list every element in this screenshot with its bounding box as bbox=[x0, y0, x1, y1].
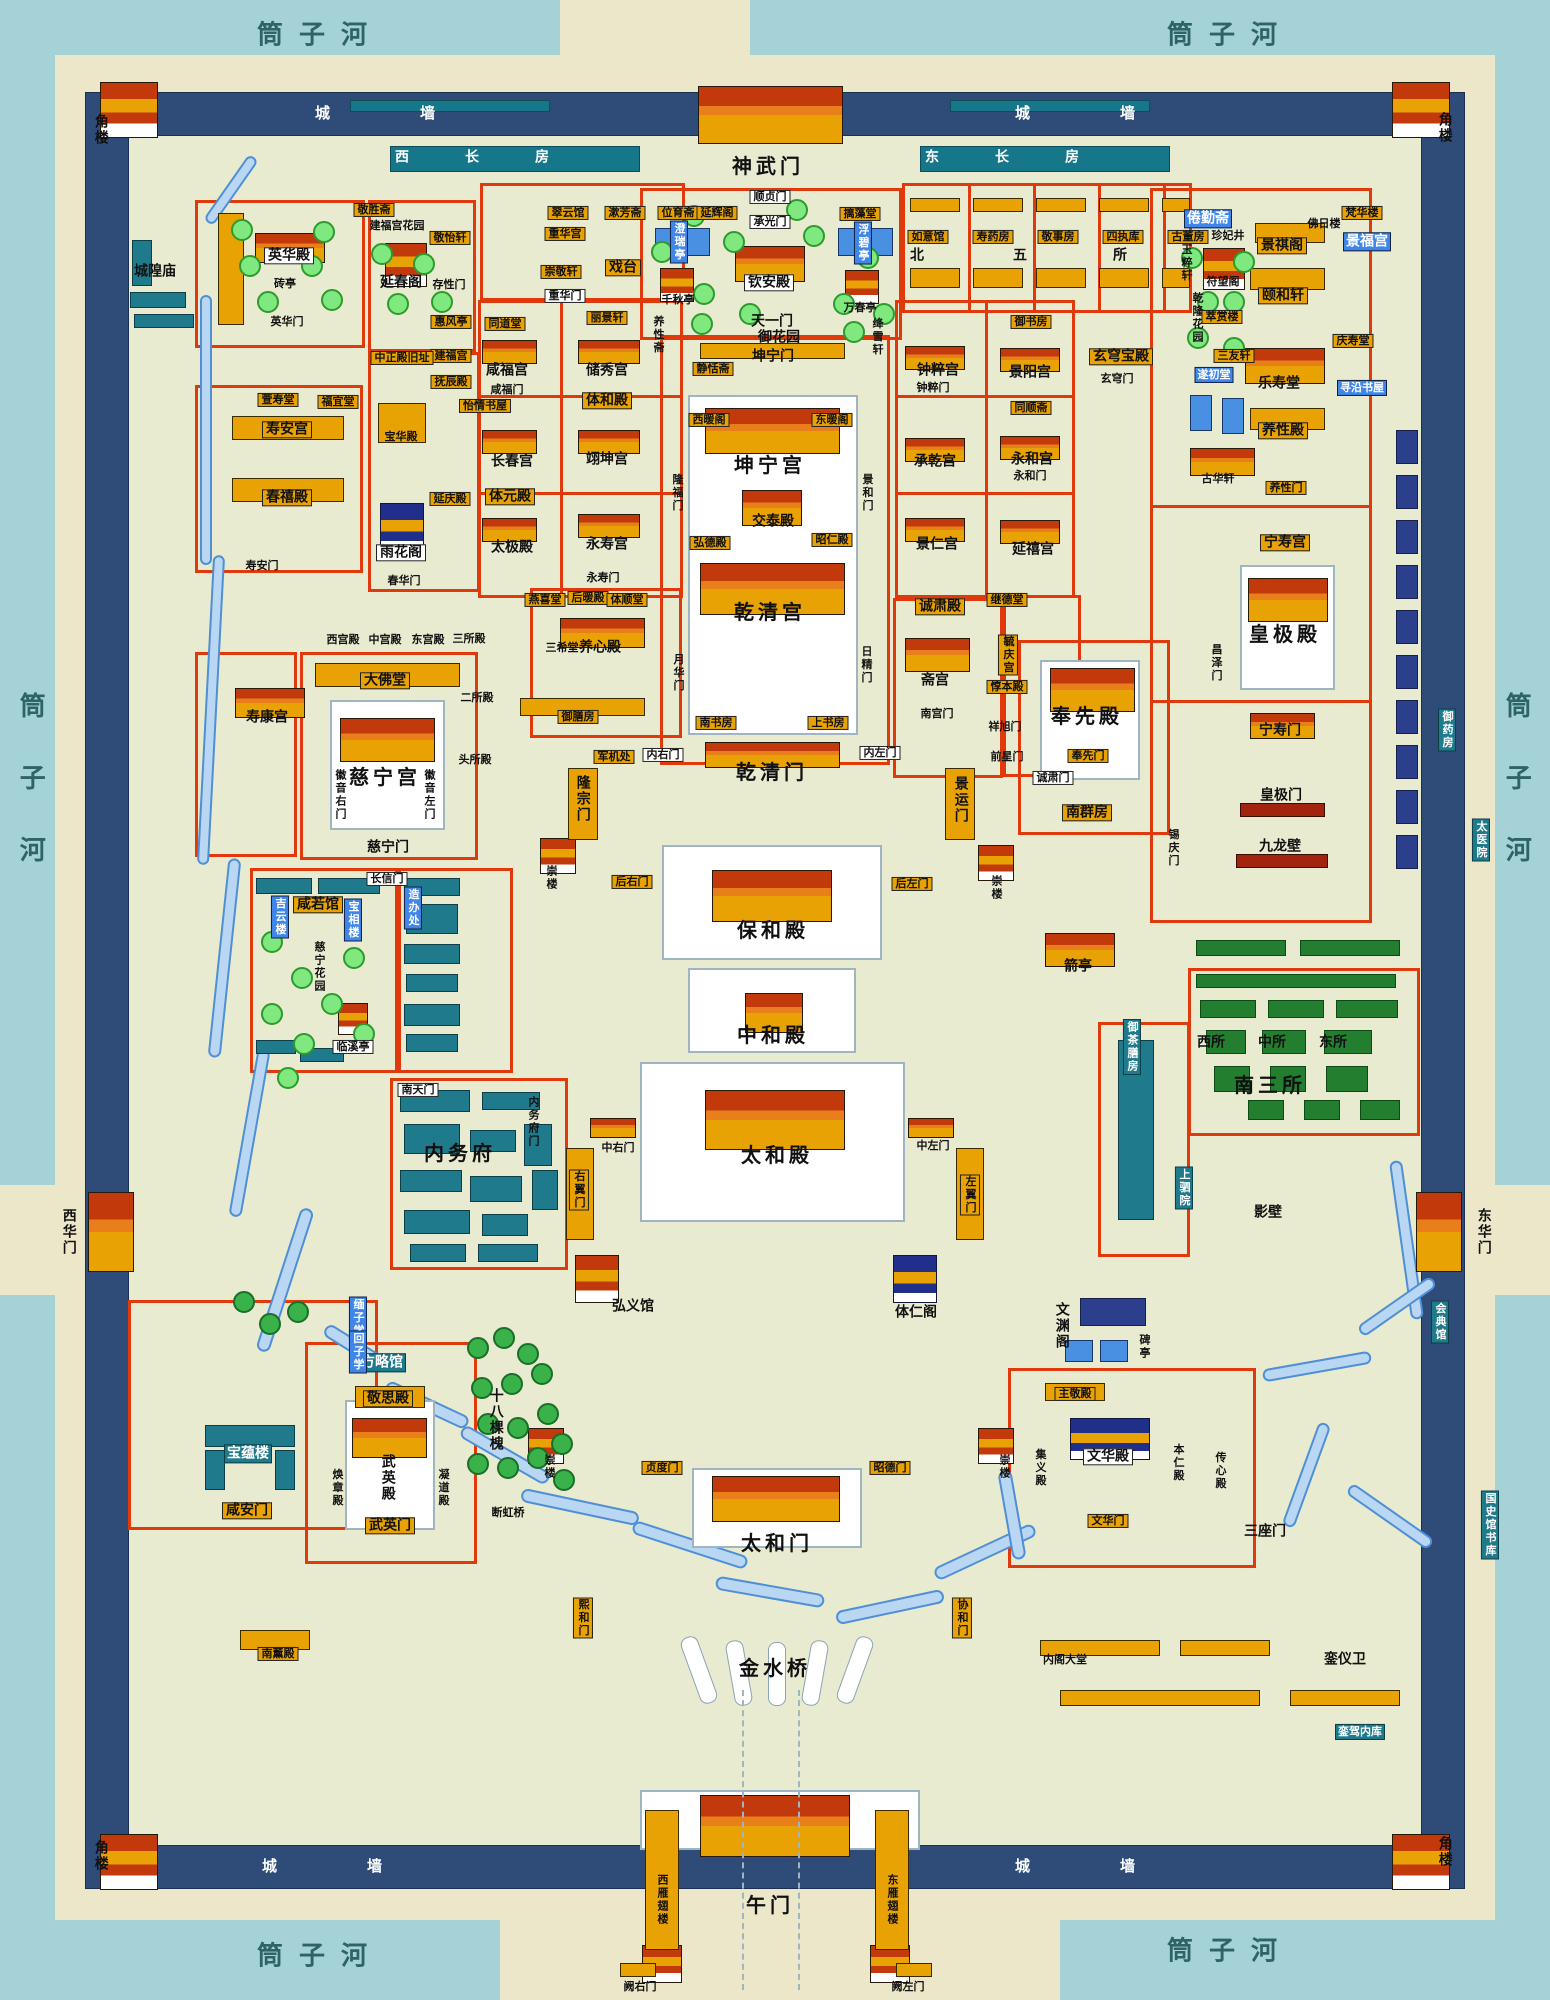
tree-icon bbox=[257, 291, 279, 313]
map-label: 雨花阁 bbox=[376, 544, 426, 561]
map-label: 三座门 bbox=[1244, 1524, 1286, 1539]
map-label: 寻沿书屋 bbox=[1337, 380, 1387, 396]
map-label: 寿安宫 bbox=[262, 421, 312, 438]
map-shape bbox=[1196, 940, 1286, 956]
map-label: 武英门 bbox=[365, 1517, 415, 1534]
map-label: 奉先殿 bbox=[1051, 705, 1123, 727]
map-label: 体和殿 bbox=[582, 392, 632, 409]
tree-icon bbox=[321, 289, 343, 311]
map-label: 内阁大堂 bbox=[1043, 1654, 1087, 1666]
map-label: 咸福宫 bbox=[486, 363, 528, 378]
map-shape bbox=[532, 1170, 558, 1210]
map-label: 回子学 bbox=[349, 1331, 367, 1374]
map-shape bbox=[1396, 700, 1418, 734]
map-label: 神武门 bbox=[732, 155, 804, 177]
map-label: 中正殿旧址 bbox=[371, 351, 434, 365]
map-label: 三所殿 bbox=[453, 633, 486, 645]
map-label: 颐和轩 bbox=[1258, 287, 1308, 304]
map-shape bbox=[482, 1214, 528, 1236]
map-shape bbox=[1099, 198, 1149, 212]
map-shape bbox=[130, 292, 186, 308]
map-label: 东宫殿 bbox=[412, 634, 445, 646]
map-label: 所 bbox=[1113, 248, 1127, 263]
map-label: 长春宫 bbox=[491, 454, 533, 469]
map-label: 贞度门 bbox=[642, 1461, 683, 1475]
map-label: 御花园 bbox=[758, 330, 800, 345]
map-label: 城墙 bbox=[315, 105, 525, 122]
map-label: 储秀宫 bbox=[586, 363, 628, 378]
map-label: 崇楼 bbox=[998, 1454, 1010, 1480]
tree-icon bbox=[517, 1343, 539, 1365]
map-label: 筒子河 bbox=[1167, 1938, 1293, 1967]
map-label: 敬怡轩 bbox=[430, 231, 471, 245]
map-shape bbox=[1458, 1185, 1550, 1295]
map-label: 熙和门 bbox=[573, 1598, 593, 1639]
tree-icon bbox=[343, 947, 365, 969]
map-label: 体元殿 bbox=[485, 488, 535, 505]
map-shape bbox=[560, 300, 563, 598]
map-label: 延春阁 bbox=[380, 275, 422, 290]
tree-icon bbox=[293, 1033, 315, 1055]
map-shape bbox=[256, 878, 312, 894]
map-label: 咸福门 bbox=[491, 384, 524, 396]
map-label: 徽音右门 bbox=[334, 769, 346, 821]
map-label: 十八棵槐 bbox=[487, 1388, 502, 1452]
map-shape bbox=[560, 0, 750, 60]
tree-icon bbox=[371, 243, 393, 265]
map-shape bbox=[470, 1176, 522, 1202]
map-shape bbox=[410, 1244, 466, 1262]
map-label: 徽音左门 bbox=[423, 769, 435, 821]
map-label: 东所 bbox=[1319, 1035, 1347, 1050]
map-label: 后右门 bbox=[612, 875, 653, 889]
map-label: 太和门 bbox=[741, 1532, 813, 1554]
map-label: 坤宁门 bbox=[752, 349, 794, 364]
map-shape bbox=[1421, 92, 1465, 1889]
map-label: 昭仁殿 bbox=[812, 533, 853, 547]
map-label: 午门 bbox=[746, 1894, 794, 1916]
map-label: 养性斋 bbox=[652, 316, 664, 355]
map-label: 隆宗门 bbox=[574, 775, 589, 823]
map-label: 御膳房 bbox=[558, 710, 599, 724]
map-label: 符望阁 bbox=[1207, 276, 1240, 288]
map-label: 传心殿 bbox=[1214, 1452, 1226, 1491]
map-label: 南天门 bbox=[398, 1083, 439, 1097]
map-shape bbox=[1036, 268, 1086, 288]
map-label: 中右门 bbox=[602, 1142, 635, 1154]
map-shape bbox=[968, 183, 971, 313]
map-label: 中所 bbox=[1258, 1035, 1286, 1050]
building-icon bbox=[712, 1476, 840, 1522]
map-label: 翊坤宫 bbox=[586, 452, 628, 467]
map-label: 万春亭 bbox=[844, 302, 877, 314]
map-label: 筒子河 bbox=[257, 1943, 383, 1972]
map-shape bbox=[1396, 745, 1418, 779]
tree-icon bbox=[551, 1433, 573, 1455]
map-shape bbox=[0, 1185, 92, 1295]
map-label: 寿药房 bbox=[973, 230, 1014, 244]
map-label: 城隍庙 bbox=[134, 264, 176, 279]
map-label: 国史馆书库 bbox=[1481, 1491, 1499, 1560]
map-label: 东暖阁 bbox=[812, 413, 853, 427]
building-icon bbox=[482, 430, 537, 454]
building-icon bbox=[712, 870, 832, 922]
map-shape bbox=[1222, 398, 1244, 434]
map-label: 阙左门 bbox=[892, 1981, 925, 1993]
map-label: 体仁阁 bbox=[895, 1305, 937, 1320]
map-label: 诚肃门 bbox=[1033, 771, 1074, 785]
map-label: 文华殿 bbox=[1083, 1448, 1133, 1465]
building-icon bbox=[908, 1118, 954, 1138]
map-shape bbox=[1360, 1100, 1400, 1120]
map-label: 戏台 bbox=[605, 259, 641, 276]
building-icon bbox=[578, 340, 640, 364]
map-shape bbox=[275, 1450, 295, 1490]
map-label: 大佛堂 bbox=[360, 672, 410, 689]
tree-icon bbox=[277, 1067, 299, 1089]
map-label: 西暖阁 bbox=[689, 413, 730, 427]
map-label: 延禧宫 bbox=[1012, 542, 1054, 557]
map-label: 协和门 bbox=[952, 1598, 972, 1639]
map-shape bbox=[1396, 475, 1418, 509]
map-label: 太极殿 bbox=[491, 540, 533, 555]
map-label: 浮碧亭 bbox=[854, 222, 872, 265]
map-label: 军机处 bbox=[594, 750, 635, 764]
map-shape bbox=[1150, 700, 1372, 703]
map-shape bbox=[1060, 1690, 1260, 1706]
map-shape bbox=[985, 300, 988, 598]
map-label: 敬胜斋 bbox=[354, 203, 395, 217]
map-label: 角楼 bbox=[1436, 1836, 1451, 1868]
map-label: 崇敬轩 bbox=[541, 265, 582, 279]
map-label: 静恬斋 bbox=[693, 362, 734, 376]
map-label: 钟粹宫 bbox=[917, 363, 959, 378]
map-label: 城墙 bbox=[1015, 105, 1225, 122]
map-label: 重华门 bbox=[545, 289, 586, 303]
map-shape bbox=[406, 974, 458, 992]
map-shape bbox=[1396, 835, 1418, 869]
map-shape bbox=[1036, 198, 1086, 212]
map-shape bbox=[1396, 430, 1418, 464]
map-label: 角楼 bbox=[92, 114, 107, 146]
tree-icon bbox=[287, 1301, 309, 1323]
map-label: 南书房 bbox=[696, 716, 737, 730]
tree-icon bbox=[493, 1327, 515, 1349]
map-label: 筒子河 bbox=[1167, 22, 1293, 51]
map-label: 建福宫花园 bbox=[370, 220, 425, 232]
river-segment bbox=[200, 295, 212, 565]
map-shape bbox=[1100, 1340, 1128, 1362]
map-label: 同道堂 bbox=[485, 317, 526, 331]
tree-icon bbox=[313, 221, 335, 243]
forbidden-city-map: 筒子河筒子河筒子河筒子河筒子河筒子河角楼角楼角楼角楼城墙城墙城墙城墙西长房东长房… bbox=[0, 0, 1550, 2000]
map-label: 三希堂 bbox=[546, 642, 579, 654]
map-label: 御书房 bbox=[1011, 315, 1052, 329]
map-label: 澄瑞亭 bbox=[670, 221, 688, 264]
map-shape bbox=[1396, 565, 1418, 599]
map-label: 承乾宫 bbox=[914, 454, 956, 469]
map-label: 梵华楼 bbox=[1342, 206, 1383, 220]
map-label: 断虹桥 bbox=[492, 1507, 525, 1519]
tree-icon bbox=[233, 1291, 255, 1313]
map-label: 文华门 bbox=[1088, 1514, 1129, 1528]
map-label: 惠风亭 bbox=[431, 315, 472, 329]
map-label: 丽景轩 bbox=[587, 311, 628, 325]
building-icon bbox=[1248, 578, 1328, 622]
map-label: 宁寿门 bbox=[1259, 723, 1301, 738]
map-label: 乾清门 bbox=[736, 761, 808, 783]
map-label: 玄穹门 bbox=[1101, 373, 1134, 385]
map-label: 延辉阁 bbox=[697, 206, 738, 220]
map-label: 景仁宫 bbox=[916, 537, 958, 552]
map-label: 漱芳斋 bbox=[605, 206, 646, 220]
tree-icon bbox=[467, 1453, 489, 1475]
map-label: 体顺堂 bbox=[607, 593, 648, 607]
map-label: 景祺阁 bbox=[1257, 237, 1307, 254]
map-shape bbox=[1099, 268, 1149, 288]
map-label: 永和宫 bbox=[1011, 452, 1053, 467]
map-label: 皇极殿 bbox=[1249, 623, 1321, 645]
map-label: 后左门 bbox=[892, 877, 933, 891]
map-label: 慈宁花园 bbox=[313, 941, 325, 993]
map-label: 凝道殿 bbox=[437, 1469, 449, 1508]
map-label: 弘德殿 bbox=[690, 536, 731, 550]
map-label: 内右门 bbox=[643, 748, 684, 762]
map-label: 顺贞门 bbox=[750, 190, 791, 204]
building-icon bbox=[482, 340, 537, 364]
tree-icon bbox=[467, 1337, 489, 1359]
tree-icon bbox=[321, 993, 343, 1015]
tree-icon bbox=[1233, 251, 1255, 273]
map-shape bbox=[1200, 1000, 1256, 1018]
map-label: 天一门 bbox=[751, 314, 793, 329]
tree-icon bbox=[261, 1003, 283, 1025]
map-shape bbox=[256, 1040, 296, 1054]
tree-icon bbox=[291, 967, 313, 989]
map-label: 毓庆宫 bbox=[998, 635, 1018, 676]
map-shape bbox=[1240, 803, 1325, 817]
map-label: 继德堂 bbox=[987, 593, 1028, 607]
map-shape bbox=[798, 1690, 800, 1990]
map-label: 古董房 bbox=[1168, 230, 1209, 244]
map-shape bbox=[1080, 1298, 1146, 1326]
map-label: 角楼 bbox=[92, 1840, 107, 1872]
map-label: 寿安门 bbox=[246, 560, 279, 572]
map-shape bbox=[1396, 655, 1418, 689]
building-icon bbox=[100, 1834, 158, 1890]
map-shape bbox=[895, 492, 1075, 495]
map-label: 造办处 bbox=[404, 887, 422, 930]
map-label: 三友轩 bbox=[1214, 349, 1255, 363]
map-label: 左翼门 bbox=[960, 1175, 980, 1216]
map-shape bbox=[404, 1004, 460, 1026]
map-label: 珍妃井 bbox=[1212, 230, 1245, 242]
map-shape bbox=[1396, 790, 1418, 824]
map-label: 内务府门 bbox=[527, 1096, 539, 1148]
map-label: 古华轩 bbox=[1202, 473, 1235, 485]
map-label: 西华门 bbox=[60, 1208, 75, 1256]
map-shape bbox=[1268, 1000, 1324, 1018]
map-shape bbox=[1236, 854, 1328, 868]
map-label: 玉粹轩 bbox=[1180, 244, 1192, 283]
map-label: 东长房 bbox=[925, 150, 1135, 165]
map-label: 春禧殿 bbox=[262, 489, 312, 506]
map-shape bbox=[1290, 1690, 1400, 1706]
building-icon bbox=[100, 82, 158, 138]
map-label: 敬思殿 bbox=[363, 1390, 413, 1407]
building-icon bbox=[905, 638, 970, 672]
map-label: 景和门 bbox=[861, 474, 873, 513]
map-shape bbox=[910, 198, 960, 212]
map-label: 文渊阁 bbox=[1053, 1302, 1068, 1350]
map-label: 西所 bbox=[1197, 1035, 1225, 1050]
map-label: 英华门 bbox=[271, 316, 304, 328]
building-icon bbox=[700, 1795, 850, 1857]
map-label: 存性门 bbox=[433, 279, 466, 291]
map-label: 中左门 bbox=[917, 1140, 950, 1152]
map-label: 御药房 bbox=[1438, 709, 1456, 752]
map-label: 寿康宫 bbox=[246, 710, 288, 725]
map-label: 敬事房 bbox=[1038, 230, 1079, 244]
map-shape bbox=[1300, 940, 1400, 956]
map-label: 乾清宫 bbox=[734, 601, 806, 623]
map-label: 东雁翅楼 bbox=[886, 1874, 898, 1926]
map-label: 筒子河 bbox=[16, 692, 45, 908]
map-label: 集义殿 bbox=[1034, 1449, 1046, 1488]
map-label: 倦勤斋 bbox=[1184, 209, 1232, 228]
tree-icon bbox=[497, 1457, 519, 1479]
map-label: 慈宁门 bbox=[367, 840, 409, 855]
map-shape bbox=[478, 1244, 538, 1262]
map-label: 五 bbox=[1013, 248, 1027, 263]
map-shape bbox=[404, 944, 460, 964]
map-shape bbox=[973, 268, 1023, 288]
map-shape bbox=[620, 1963, 656, 1977]
map-label: 宝相楼 bbox=[344, 899, 362, 942]
map-label: 斋宫 bbox=[921, 673, 949, 688]
map-label: 昌泽门 bbox=[1210, 644, 1222, 683]
map-shape bbox=[85, 92, 129, 1889]
map-shape bbox=[1180, 1640, 1270, 1656]
map-shape bbox=[1190, 395, 1212, 431]
map-label: 惇本殿 bbox=[987, 680, 1028, 694]
building-icon bbox=[893, 1255, 937, 1303]
map-shape bbox=[973, 198, 1023, 212]
tree-icon bbox=[553, 1469, 575, 1491]
building-icon bbox=[698, 86, 843, 144]
map-label: 延庆殿 bbox=[430, 492, 471, 506]
map-label: 銮驾内库 bbox=[1335, 1724, 1385, 1740]
map-shape bbox=[1326, 1066, 1368, 1092]
building-icon bbox=[340, 718, 435, 762]
map-shape bbox=[406, 1034, 458, 1052]
map-label: 位育斋 bbox=[658, 206, 699, 220]
tree-icon bbox=[387, 293, 409, 315]
map-label: 二所殿 bbox=[461, 692, 494, 704]
map-label: 养心殿 bbox=[579, 640, 621, 655]
map-label: 西雁翅楼 bbox=[656, 1874, 668, 1926]
map-label: 咸安门 bbox=[222, 1502, 272, 1519]
map-label: 养性殿 bbox=[1258, 422, 1308, 439]
map-label: 萃赏楼 bbox=[1202, 310, 1243, 324]
map-label: 诚肃殿 bbox=[915, 598, 965, 615]
map-label: 保和殿 bbox=[737, 919, 809, 941]
map-label: 角楼 bbox=[1436, 112, 1451, 144]
map-label: 金水桥 bbox=[739, 1657, 811, 1679]
tree-icon bbox=[413, 253, 435, 275]
map-label: 英华殿 bbox=[264, 247, 314, 264]
map-label: 乐寿堂 bbox=[1258, 376, 1300, 391]
map-label: 銮仪卫 bbox=[1324, 1652, 1366, 1667]
map-label: 碑亭 bbox=[1138, 1334, 1150, 1360]
map-label: 佛日楼 bbox=[1308, 218, 1341, 230]
building-icon bbox=[590, 1118, 636, 1138]
map-shape bbox=[1304, 1100, 1340, 1120]
map-label: 永和门 bbox=[1014, 470, 1047, 482]
map-label: 箭亭 bbox=[1064, 959, 1092, 974]
map-label: 景运门 bbox=[952, 776, 967, 824]
map-label: 建福宫 bbox=[431, 349, 472, 363]
map-shape bbox=[1396, 520, 1418, 554]
map-shape bbox=[1196, 974, 1396, 988]
map-label: 影壁 bbox=[1254, 1205, 1282, 1220]
tree-icon bbox=[501, 1373, 523, 1395]
map-label: 上书房 bbox=[808, 716, 849, 730]
map-label: 北 bbox=[910, 248, 924, 263]
map-label: 燕喜堂 bbox=[525, 593, 566, 607]
map-label: 崇楼 bbox=[990, 875, 1002, 901]
map-label: 南宫门 bbox=[921, 708, 954, 720]
map-label: 四执库 bbox=[1103, 230, 1144, 244]
map-label: 临溪亭 bbox=[333, 1040, 374, 1054]
map-label: 宝蕴楼 bbox=[224, 1444, 272, 1463]
map-shape bbox=[1150, 505, 1372, 508]
map-label: 日精门 bbox=[860, 646, 872, 685]
map-label: 千秋亭 bbox=[662, 294, 695, 306]
map-label: 庆寿堂 bbox=[1333, 334, 1374, 348]
map-shape bbox=[742, 1690, 744, 1990]
tree-icon bbox=[507, 1417, 529, 1439]
map-label: 月华门 bbox=[672, 654, 684, 693]
map-label: 福宜堂 bbox=[318, 395, 359, 409]
map-label: 皇极门 bbox=[1260, 788, 1302, 803]
map-label: 后暖殿 bbox=[568, 591, 609, 605]
map-shape bbox=[205, 1450, 225, 1490]
map-label: 城墙 bbox=[1015, 1858, 1225, 1875]
map-label: 永寿门 bbox=[587, 572, 620, 584]
map-label: 内左门 bbox=[860, 746, 901, 760]
map-label: 景阳宫 bbox=[1009, 365, 1051, 380]
map-label: 钟粹门 bbox=[917, 382, 950, 394]
tree-icon bbox=[537, 1403, 559, 1425]
map-label: 砖亭 bbox=[274, 278, 296, 290]
tree-icon bbox=[239, 255, 261, 277]
map-label: 上驷院 bbox=[1175, 1167, 1193, 1210]
map-label: 锡庆门 bbox=[1167, 829, 1179, 868]
map-label: 承光门 bbox=[750, 215, 791, 229]
building-icon bbox=[1416, 1192, 1462, 1272]
map-label: 重华宫 bbox=[545, 227, 586, 241]
map-label: 祥旭门 bbox=[989, 721, 1022, 733]
map-label: 太和殿 bbox=[741, 1144, 813, 1166]
map-shape bbox=[404, 1210, 470, 1234]
map-label: 筒子河 bbox=[257, 22, 383, 51]
map-label: 吉云楼 bbox=[271, 896, 289, 939]
tree-icon bbox=[259, 1313, 281, 1335]
tree-icon bbox=[693, 283, 715, 305]
map-label: 中宫殿 bbox=[369, 634, 402, 646]
map-shape bbox=[1248, 1100, 1284, 1120]
